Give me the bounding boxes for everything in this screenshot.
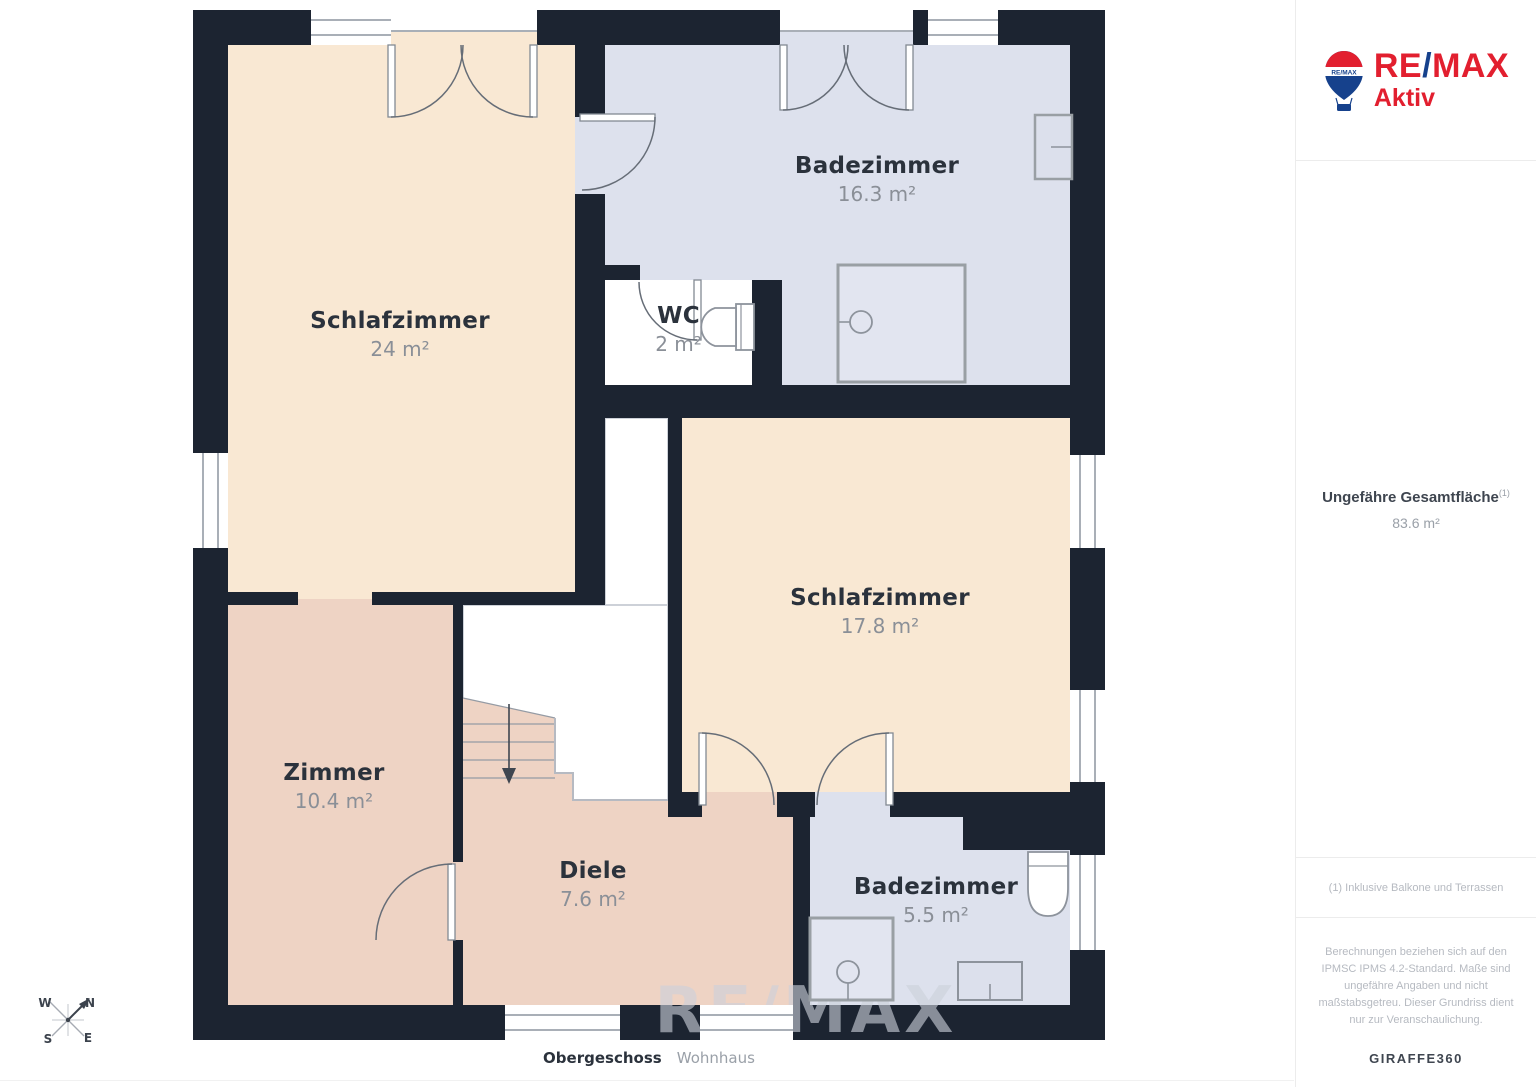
window-frame [505,1014,620,1031]
footnote-card: (1) Inklusive Balkone und Terrassen [1296,857,1536,917]
room-area: 5.5 m² [836,903,1036,927]
label-schlafzimmer-17: Schlafzimmer 17.8 m² [730,585,1030,638]
disclaimer-card: Berechnungen beziehen sich auf den IPMSC… [1296,917,1536,1069]
window-frame [311,19,391,36]
wordmark-re: RE [1374,47,1422,85]
compass-north-label: N [85,996,95,1010]
compass-center [66,1018,70,1022]
balcony-threshold-badezimmer [780,32,913,45]
total-area-value: 83.6 m² [1392,515,1439,531]
stairwell-void [463,605,668,800]
generator-suffix: 360 [1437,1051,1463,1066]
room-name: Schlafzimmer [250,308,550,334]
plan-caption: Obergeschoss Wohnhaus [193,1048,1105,1067]
total-area-card: Ungefähre Gesamtfläche(1) 83.6 m² [1296,160,1536,857]
balloon-wordmark: RE/MAX [1331,70,1357,77]
label-badezimmer-16: Badezimmer 16.3 m² [727,153,1027,206]
stairwell-void-upper [605,418,668,605]
room-name: Diele [493,858,693,884]
window-frame [1079,855,1096,950]
doorway-diele-schlafzimmer [702,792,777,817]
remax-wordmark: RE/MAX Aktiv [1374,49,1509,111]
sidebar: RE/MAX RE/MAX Aktiv Ungefähre Gesamtfläc… [1295,0,1536,1087]
window-frame [928,19,998,36]
room-name: Schlafzimmer [730,585,1030,611]
label-diele: Diele 7.6 m² [493,858,693,911]
compass-south-label: S [44,1032,53,1046]
remax-logo: RE/MAX RE/MAX Aktiv [1296,0,1536,160]
balcony-opening-badezimmer [780,10,913,32]
building-name: Wohnhaus [677,1049,755,1067]
doorway-zimmer-diele [453,862,463,940]
wc-wall-stub [605,265,640,280]
window-left [193,453,228,548]
generator-logo: GIRAFFE360 [1311,1049,1521,1069]
compass-rose: W N S E [18,968,118,1068]
compass-east-label: E [84,1031,92,1045]
label-badezimmer-5: Badezimmer 5.5 m² [836,874,1036,927]
watermark: RE/MAX [621,974,991,1048]
room-area: 17.8 m² [730,614,1030,638]
room-area: 7.6 m² [493,887,693,911]
floorplan-page: { "page": { "caption_floor": "Obergescho… [0,0,1536,1087]
room-area: 10.4 m² [234,789,434,813]
opening-schlafzimmer-zimmer-bottom [298,599,372,605]
floor-name: Obergeschoss [543,1049,662,1067]
window-right-2 [1070,690,1105,782]
room-area: 24 m² [250,337,550,361]
floorplan-canvas: RE/MAX [193,10,1105,1040]
room-name: WC [605,303,752,329]
window-frame [202,453,219,548]
page-bottom-rule [0,1080,1294,1081]
footnote-marker: (1) [1499,488,1510,498]
footnote-text: (1) Inklusive Balkone und Terrassen [1329,882,1504,894]
label-wc: WC 2 m² [605,303,752,356]
balcony-threshold-schlafzimmer [390,32,537,45]
compass-west-label: W [38,996,51,1010]
room-badezimmer-16-floor-lower [782,280,1070,385]
window-top-left [311,10,391,45]
room-area: 16.3 m² [727,182,1027,206]
label-zimmer: Zimmer 10.4 m² [234,760,434,813]
total-area-label: Ungefähre Gesamtfläche(1) [1322,488,1510,506]
window-frame [1079,455,1096,548]
room-name: Zimmer [234,760,434,786]
window-bottom-1 [505,1005,620,1040]
window-right-1 [1070,455,1105,548]
room-area: 2 m² [605,332,752,356]
window-right-3 [1070,855,1105,950]
generator-name: GIRAFFE [1369,1051,1437,1066]
label-schlafzimmer-24: Schlafzimmer 24 m² [250,308,550,361]
disclaimer-text: Berechnungen beziehen sich auf den IPMSC… [1311,944,1521,1029]
office-name: Aktiv [1374,86,1509,111]
total-area-text: Ungefähre Gesamtfläche [1322,489,1499,506]
wordmark-slash: / [1422,47,1432,85]
room-name: Badezimmer [727,153,1027,179]
window-frame [1079,690,1096,782]
opening-schlafzimmer-zimmer-top [298,592,372,599]
window-frame [700,1014,793,1031]
remax-balloon-icon: RE/MAX [1323,48,1365,112]
doorway-badezimmer5-schlafzimmer [815,792,890,817]
wordmark-max: MAX [1432,47,1509,85]
balcony-opening-schlafzimmer [390,10,537,32]
window-top-right [928,10,998,45]
doorway-badezimmer16 [575,117,605,194]
room-name: Badezimmer [836,874,1036,900]
window-bottom-2 [700,1005,793,1040]
